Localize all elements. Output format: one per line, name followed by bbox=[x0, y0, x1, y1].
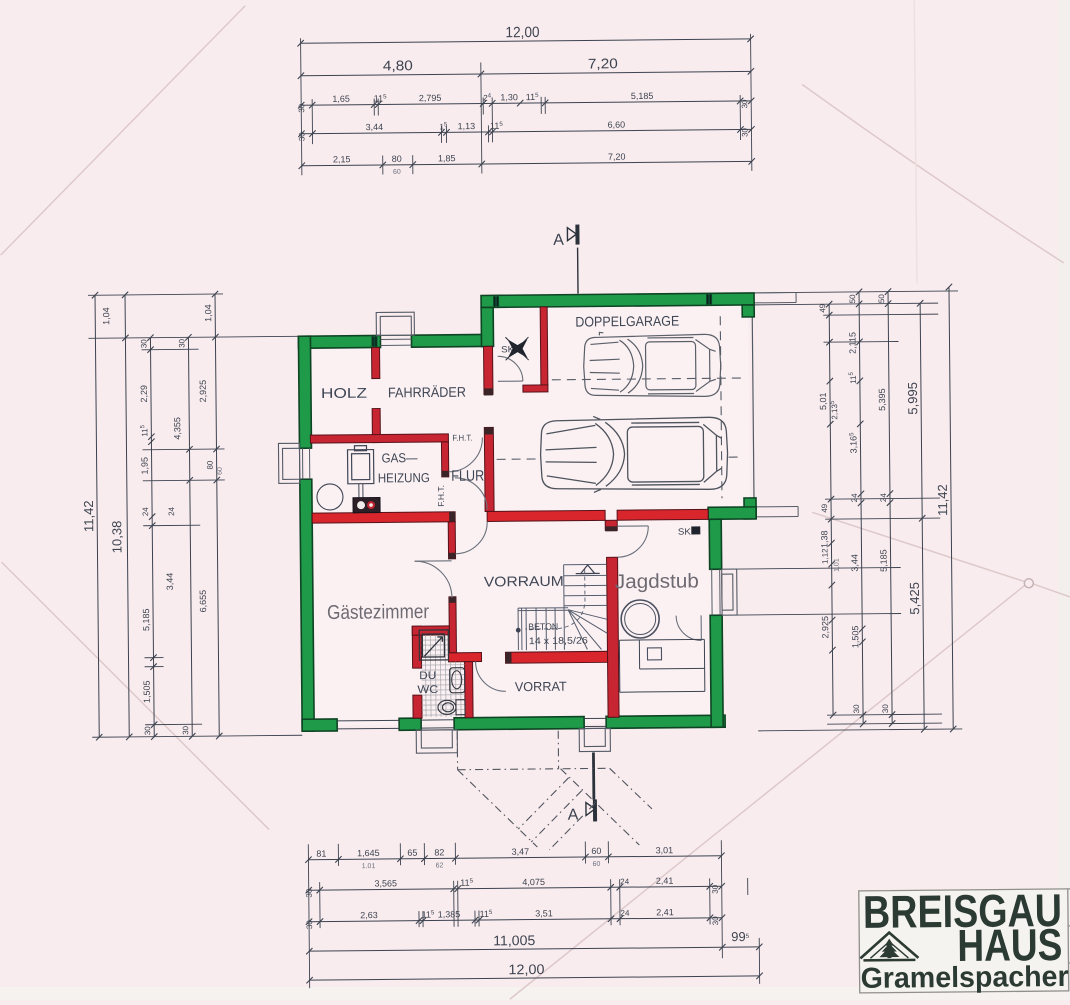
svg-text:30: 30 bbox=[181, 725, 190, 735]
svg-text:80: 80 bbox=[206, 460, 215, 470]
svg-text:24: 24 bbox=[620, 877, 630, 886]
svg-text:30: 30 bbox=[740, 99, 749, 109]
svg-text:2,15: 2,15 bbox=[333, 154, 351, 164]
svg-text:11,42: 11,42 bbox=[81, 500, 96, 532]
svg-text:DU: DU bbox=[419, 670, 436, 682]
svg-text:30: 30 bbox=[711, 884, 720, 894]
svg-text:3,44: 3,44 bbox=[366, 122, 384, 132]
svg-text:3,01: 3,01 bbox=[656, 845, 674, 855]
svg-text:1.01: 1.01 bbox=[362, 863, 376, 870]
svg-text:1,65: 1,65 bbox=[332, 94, 350, 104]
svg-text:5,395: 5,395 bbox=[877, 388, 887, 411]
svg-text:11,42: 11,42 bbox=[935, 484, 950, 516]
svg-text:30: 30 bbox=[297, 132, 306, 142]
svg-text:5,425: 5,425 bbox=[907, 582, 922, 615]
svg-text:1,385: 1,385 bbox=[438, 909, 461, 919]
svg-text:30: 30 bbox=[177, 338, 186, 348]
svg-text:1,12: 1,12 bbox=[820, 548, 829, 564]
svg-text:60: 60 bbox=[593, 861, 601, 868]
svg-text:FAHRRÄDER: FAHRRÄDER bbox=[388, 384, 466, 401]
svg-text:GAS—: GAS— bbox=[382, 450, 418, 465]
svg-text:50: 50 bbox=[877, 294, 886, 304]
svg-text:5,01: 5,01 bbox=[818, 392, 828, 410]
svg-text:30: 30 bbox=[305, 888, 314, 898]
svg-text:30: 30 bbox=[740, 127, 749, 137]
svg-text:10,38: 10,38 bbox=[109, 521, 124, 554]
svg-text:1,04: 1,04 bbox=[203, 304, 213, 322]
svg-text:14 x 18,5/26: 14 x 18,5/26 bbox=[529, 635, 588, 647]
svg-text:1,01: 1,01 bbox=[834, 558, 841, 572]
svg-text:2,925: 2,925 bbox=[198, 380, 208, 403]
svg-text:11,005: 11,005 bbox=[493, 932, 535, 948]
svg-text:5,185: 5,185 bbox=[631, 91, 654, 101]
svg-text:5,185: 5,185 bbox=[141, 608, 151, 631]
svg-text:3,44: 3,44 bbox=[165, 573, 175, 591]
svg-text:6,655: 6,655 bbox=[198, 590, 208, 613]
svg-text:3,51: 3,51 bbox=[535, 908, 553, 918]
svg-text:5,995: 5,995 bbox=[905, 382, 920, 415]
svg-text:24: 24 bbox=[141, 507, 150, 517]
svg-text:81: 81 bbox=[316, 849, 326, 859]
svg-text:80: 80 bbox=[392, 154, 402, 164]
svg-text:30: 30 bbox=[305, 920, 314, 930]
svg-text:2,115: 2,115 bbox=[847, 332, 857, 354]
svg-text:1,38: 1,38 bbox=[819, 530, 829, 548]
svg-text:BETON: BETON bbox=[528, 622, 558, 633]
svg-text:2,795: 2,795 bbox=[419, 93, 442, 103]
svg-text:1,85: 1,85 bbox=[438, 153, 456, 163]
svg-text:50: 50 bbox=[848, 294, 857, 304]
svg-text:7,20: 7,20 bbox=[608, 152, 626, 162]
svg-text:Jagdstub: Jagdstub bbox=[615, 570, 699, 593]
svg-text:4,355: 4,355 bbox=[172, 417, 182, 440]
svg-text:DOPPELGARAGE: DOPPELGARAGE bbox=[575, 313, 679, 330]
svg-text:12,00: 12,00 bbox=[508, 961, 544, 977]
svg-text:FLUR: FLUR bbox=[451, 467, 484, 484]
svg-text:24: 24 bbox=[850, 493, 859, 503]
svg-text:49: 49 bbox=[818, 303, 827, 313]
svg-text:1,505: 1,505 bbox=[142, 680, 152, 703]
svg-text:Gästezimmer: Gästezimmer bbox=[327, 601, 429, 624]
svg-text:2,925: 2,925 bbox=[820, 616, 830, 639]
svg-text:30: 30 bbox=[711, 916, 720, 926]
svg-text:7,20: 7,20 bbox=[588, 55, 618, 71]
svg-text:Gramelspacher: Gramelspacher bbox=[860, 961, 1068, 995]
svg-text:3,565: 3,565 bbox=[374, 878, 397, 888]
svg-text:4,075: 4,075 bbox=[522, 877, 545, 887]
svg-text:2,41: 2,41 bbox=[656, 876, 674, 886]
svg-text:60: 60 bbox=[217, 467, 224, 475]
svg-text:1,30: 1,30 bbox=[500, 92, 518, 102]
svg-text:30: 30 bbox=[143, 726, 152, 736]
svg-text:24: 24 bbox=[167, 506, 176, 516]
svg-text:2,63: 2,63 bbox=[360, 910, 378, 920]
svg-text:1,04: 1,04 bbox=[101, 307, 111, 325]
svg-text:30: 30 bbox=[297, 103, 306, 113]
svg-text:1,505: 1,505 bbox=[850, 626, 860, 649]
svg-text:4,80: 4,80 bbox=[383, 57, 413, 73]
svg-text:30: 30 bbox=[852, 704, 861, 714]
svg-text:3,47: 3,47 bbox=[512, 847, 530, 857]
svg-text:5,185: 5,185 bbox=[878, 549, 888, 572]
svg-text:82: 82 bbox=[434, 847, 444, 857]
svg-text:1,13: 1,13 bbox=[458, 121, 476, 131]
svg-text:24: 24 bbox=[879, 493, 888, 503]
svg-text:F.H.T.: F.H.T. bbox=[452, 433, 472, 443]
svg-text:SK: SK bbox=[678, 527, 691, 537]
svg-text:30: 30 bbox=[139, 339, 148, 349]
svg-text:24: 24 bbox=[620, 909, 630, 918]
svg-text:60: 60 bbox=[393, 169, 401, 176]
svg-text:60: 60 bbox=[591, 846, 601, 856]
svg-text:6,60: 6,60 bbox=[608, 120, 626, 130]
svg-text:HEIZUNG: HEIZUNG bbox=[378, 470, 430, 485]
svg-text:30: 30 bbox=[881, 704, 890, 714]
svg-text:VORRAT: VORRAT bbox=[515, 679, 567, 694]
svg-text:1,645: 1,645 bbox=[357, 848, 380, 858]
svg-text:1,95: 1,95 bbox=[140, 457, 150, 475]
svg-text:A: A bbox=[553, 232, 564, 249]
svg-text:3,44: 3,44 bbox=[850, 554, 860, 572]
svg-text:62: 62 bbox=[436, 862, 444, 869]
svg-text:HOLZ: HOLZ bbox=[321, 385, 368, 401]
svg-text:2,29: 2,29 bbox=[139, 385, 149, 403]
svg-text:2,41: 2,41 bbox=[656, 907, 674, 917]
svg-text:WC: WC bbox=[417, 684, 438, 696]
svg-text:12,00: 12,00 bbox=[505, 24, 539, 41]
svg-text:VORRAUM: VORRAUM bbox=[484, 573, 564, 590]
svg-text:F.H.T.: F.H.T. bbox=[436, 485, 446, 507]
svg-text:49: 49 bbox=[820, 503, 829, 513]
svg-text:65: 65 bbox=[407, 848, 417, 858]
